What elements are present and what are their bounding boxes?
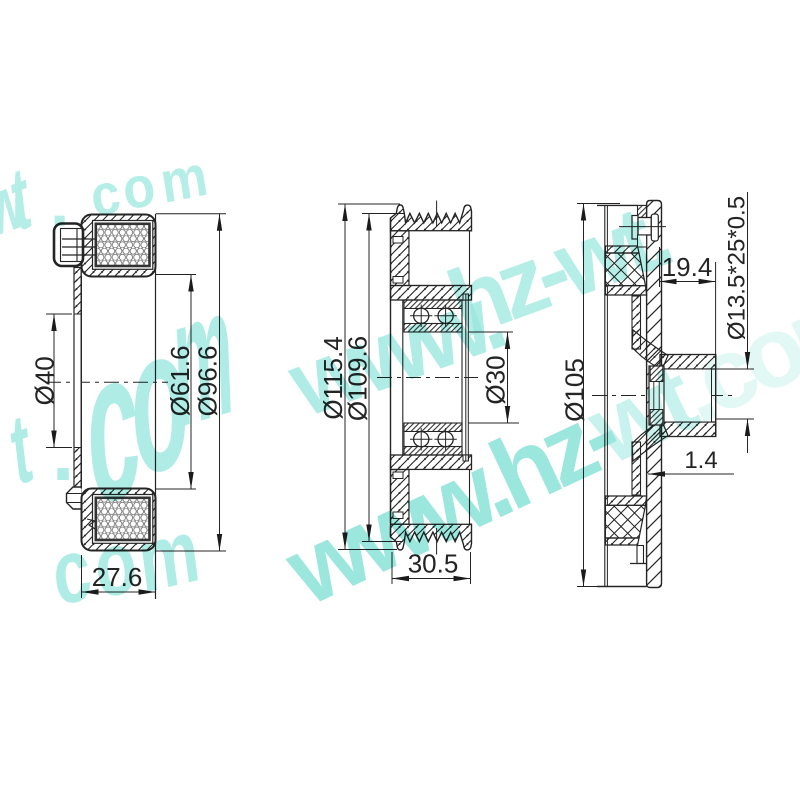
svg-text:.: . (52, 408, 74, 497)
svg-text:.: . (50, 163, 69, 241)
svg-text:Ø40: Ø40 (30, 356, 60, 405)
svg-text:m: m (170, 245, 237, 467)
